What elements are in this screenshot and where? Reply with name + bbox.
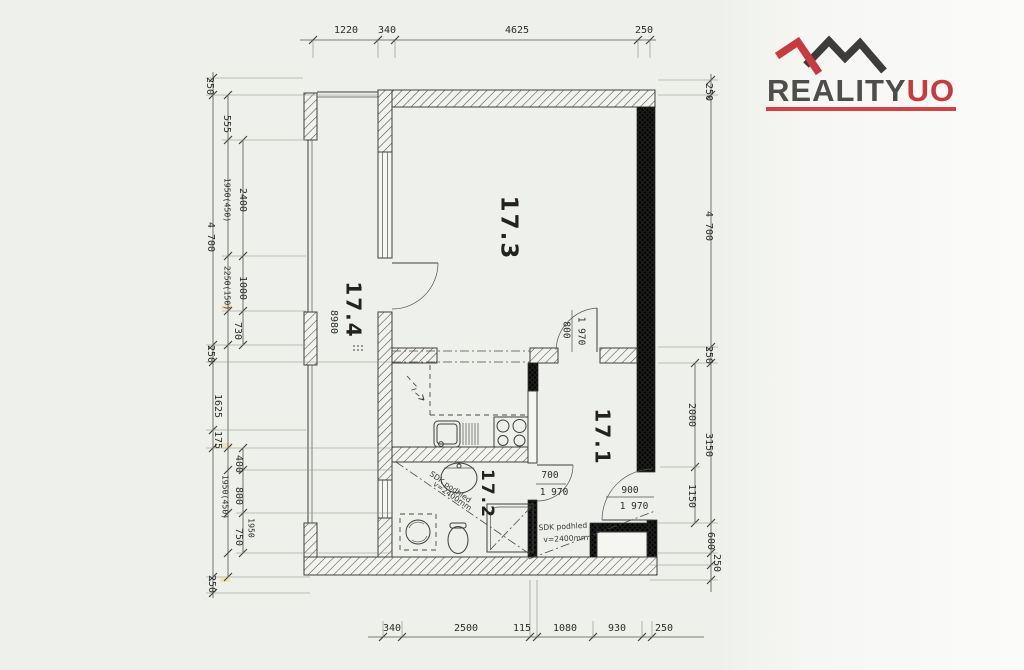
dim-label: 555 (221, 115, 232, 133)
balcony-length-label: 8980 (328, 310, 339, 334)
wall-right-upper (637, 107, 655, 472)
svg-text:REALITYUO: REALITYUO (767, 73, 955, 108)
wall-left-seg2 (378, 312, 392, 480)
dim-label: 1000 (237, 276, 248, 300)
dim-label: 250 (703, 83, 714, 101)
bathroom-door-height: 1 970 (540, 487, 569, 498)
room-label-balcony: 17.4 (342, 281, 366, 338)
dim-label: 3150 (703, 433, 714, 457)
balcony-pillar-bottom (304, 523, 317, 557)
dim-label: 1950 (247, 518, 257, 538)
wall-bottom (304, 557, 657, 575)
dim-label: 250 (635, 25, 653, 36)
room-label-bathroom: 17.2 (477, 469, 497, 519)
dim-label: 600 (705, 532, 716, 550)
bathroom-door-width: 700 (541, 470, 558, 481)
entry-door-height: 1 970 (620, 501, 649, 512)
dim-label: 340 (378, 25, 396, 36)
entry-door-width: 900 (621, 485, 638, 496)
wall-left-seg3 (378, 518, 392, 557)
dim-label: 2400 (237, 188, 248, 212)
logo-underline (766, 107, 956, 111)
dim-label: 1150 (686, 484, 697, 508)
dim-label: 4 700 (205, 222, 216, 252)
dim-label: 1080 (553, 623, 577, 634)
dim-label: 340 (383, 623, 401, 634)
wall-left-seg1 (378, 90, 392, 152)
dim-label: 730 (232, 322, 243, 340)
logo-brand-text: REALITY (767, 73, 907, 108)
living-door-height: 1 970 (576, 317, 587, 346)
dim-label: 1950(450) (221, 475, 231, 519)
shaft-opening (597, 532, 647, 557)
dim-label: 800 (233, 487, 244, 505)
dim-label: 250 (655, 623, 673, 634)
wall-living-hall-b (530, 348, 558, 363)
dim-label: 1220 (334, 25, 358, 36)
floorplan-drawing: 800 1 970 700 1 970 900 1 970 (0, 0, 1024, 670)
shaft-top-strip (597, 523, 649, 532)
shaft-left-strip (590, 523, 597, 557)
dim-label: 2500 (454, 623, 478, 634)
room-label-hall: 17.1 (591, 408, 615, 465)
wall-living-hall-a (392, 348, 437, 363)
dim-label: 115 (513, 623, 531, 634)
wall-kitchen-bath (392, 447, 528, 462)
column-kitchen (528, 363, 538, 391)
balcony-pillar-top (304, 93, 317, 140)
scanned-floorplan-page: 800 1 970 700 1 970 900 1 970 (0, 0, 1024, 670)
dim-label: 250 (205, 345, 216, 363)
dim-label: 930 (608, 623, 626, 634)
wall-top (383, 90, 655, 107)
dim-label: 1950(450) (223, 178, 233, 222)
dim-label: 4625 (505, 25, 529, 36)
dim-label: 250 (711, 554, 722, 572)
window-living (378, 152, 392, 258)
dim-label: 4 700 (703, 211, 714, 241)
dim-label: 175 (212, 431, 223, 449)
room-label-living: 17.3 (496, 196, 522, 261)
logo-accent-text: UO (907, 73, 956, 108)
wall-hall-thin (528, 391, 537, 463)
dim-label: 1625 (212, 394, 223, 418)
balcony-pillar-mid (304, 312, 317, 365)
dim-label: 250 (204, 77, 215, 95)
dim-label: 250 (703, 346, 714, 364)
wall-living-hall-c (600, 348, 637, 363)
dim-label: 2000 (686, 403, 697, 427)
dim-label: 250 (206, 575, 217, 593)
dim-label: 750 (233, 528, 244, 546)
dim-label: 400 (233, 455, 244, 473)
window-bathroom (378, 480, 392, 518)
dim-label: 2250(150) (223, 266, 233, 310)
living-door-width: 800 (561, 321, 572, 338)
